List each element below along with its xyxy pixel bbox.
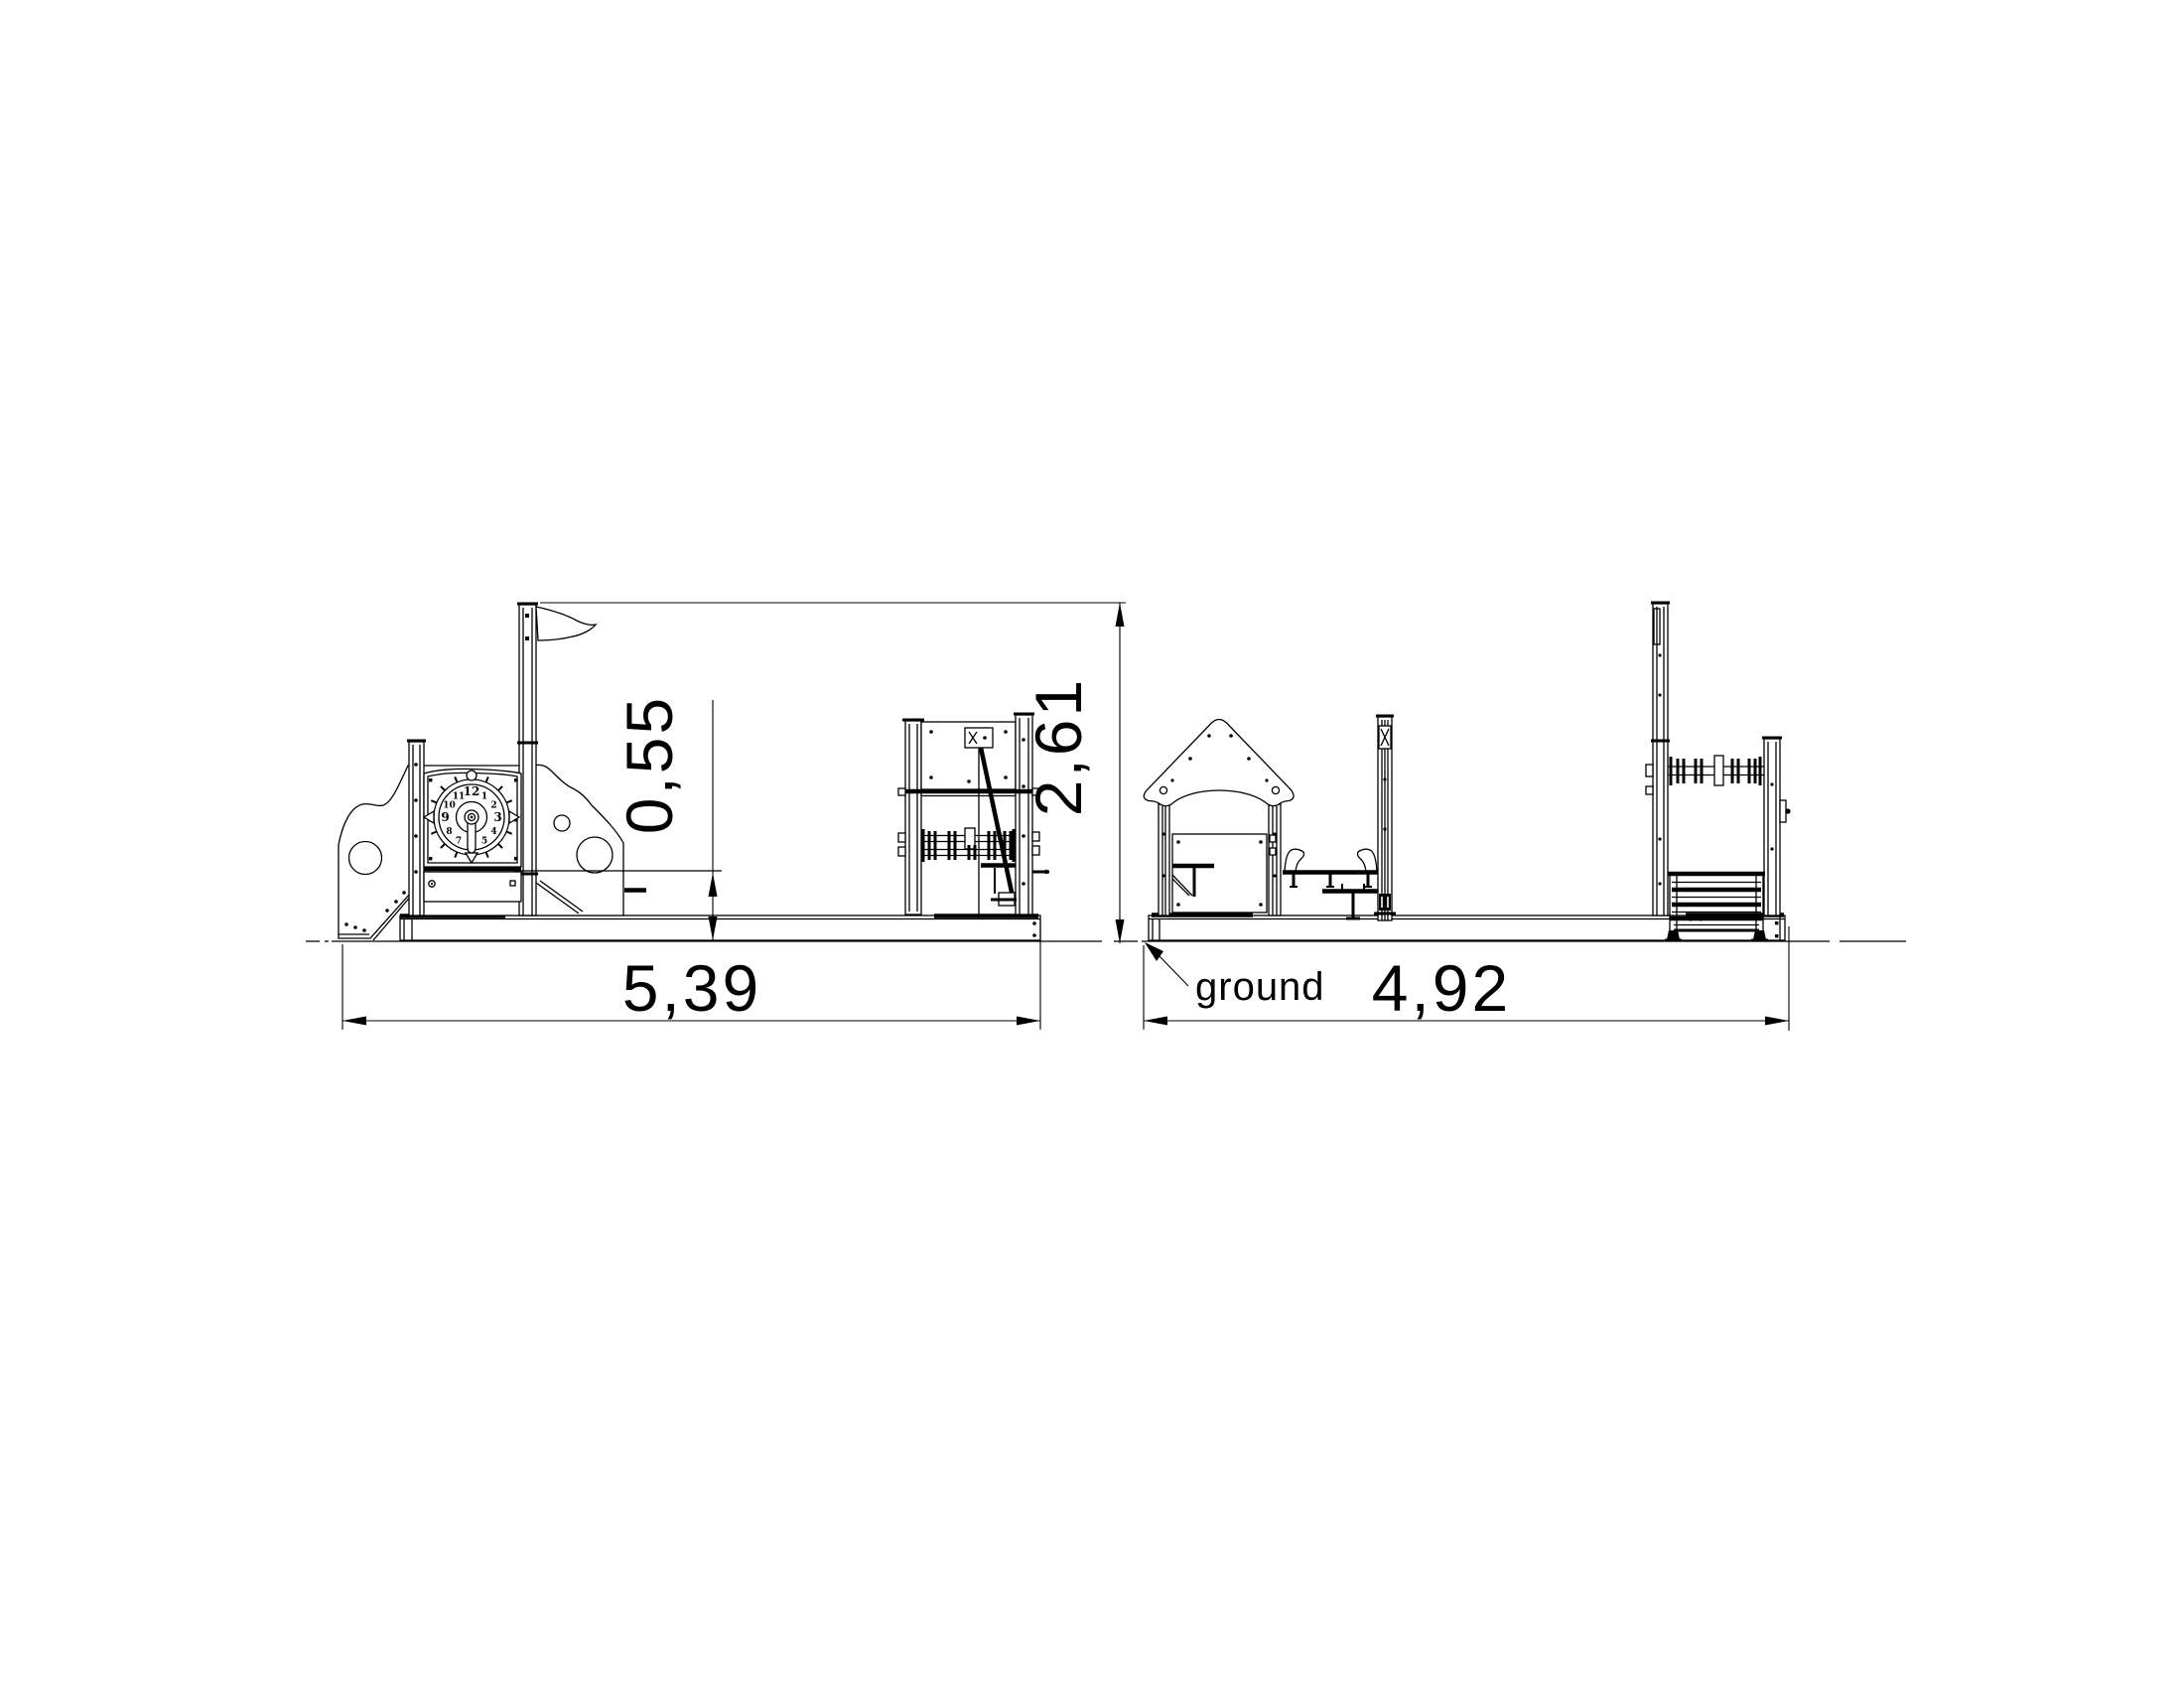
clock-number-5: 5 — [481, 837, 487, 847]
left-elevation-view: 12 1 2 3 4 5 6 7 8 9 10 11 — [339, 604, 1049, 940]
hull-porthole-small — [554, 815, 570, 831]
dimension-text-side-length: 5,39 — [622, 951, 761, 1025]
stairs — [1665, 872, 1768, 940]
house-right-post — [1269, 804, 1281, 915]
clock-number-8: 8 — [446, 827, 452, 837]
bow-post — [407, 741, 426, 915]
right-elevation-view — [1144, 603, 1790, 940]
house-back-panel — [1172, 834, 1267, 913]
clock-number-11: 11 — [453, 792, 466, 802]
clock-number-2: 2 — [490, 801, 496, 811]
clock-number-10: 10 — [443, 801, 456, 811]
monkey-bar-rungs — [1668, 756, 1764, 785]
ground-label: ground — [1195, 965, 1325, 1009]
drawing-page: 12 1 2 3 4 5 6 7 8 9 10 11 — [0, 0, 2184, 1688]
tower-handle — [1780, 800, 1786, 822]
dimension-text-front-length: 4,92 — [1372, 951, 1511, 1025]
clock-number-12: 12 — [464, 784, 480, 798]
playhouse — [1144, 720, 1294, 916]
tower-mast — [1653, 604, 1668, 915]
house-left-post — [1159, 804, 1169, 915]
clock-number-3: 3 — [493, 810, 501, 824]
climbing-tower — [1646, 603, 1791, 940]
ground-annotation: ground — [1145, 942, 1325, 1009]
hull-porthole-large-left — [349, 842, 382, 875]
platform-base-left — [400, 915, 1040, 940]
ground-leader-arrow-icon — [1145, 942, 1163, 961]
dimension-text-deck-height: 0,55 — [613, 695, 686, 834]
clock-top-finial — [467, 771, 477, 780]
bench-seat-right — [1357, 849, 1377, 872]
clock-number-1: 1 — [481, 792, 487, 802]
bench-seat-left — [1285, 849, 1304, 872]
bench-table-set — [1283, 849, 1378, 918]
clock-number-4: 4 — [490, 827, 496, 837]
dimension-deck-height: 0,55 — [613, 695, 718, 940]
flag-icon — [536, 607, 596, 640]
dimension-text-overall-height: 2,61 — [1022, 677, 1095, 816]
tower-right-post — [1764, 739, 1780, 915]
technical-drawing-canvas: 12 1 2 3 4 5 6 7 8 9 10 11 — [0, 0, 2184, 1688]
hull-porthole-large-right — [577, 837, 613, 873]
clock-number-9: 9 — [441, 810, 449, 824]
clock-number-7: 7 — [456, 837, 462, 847]
